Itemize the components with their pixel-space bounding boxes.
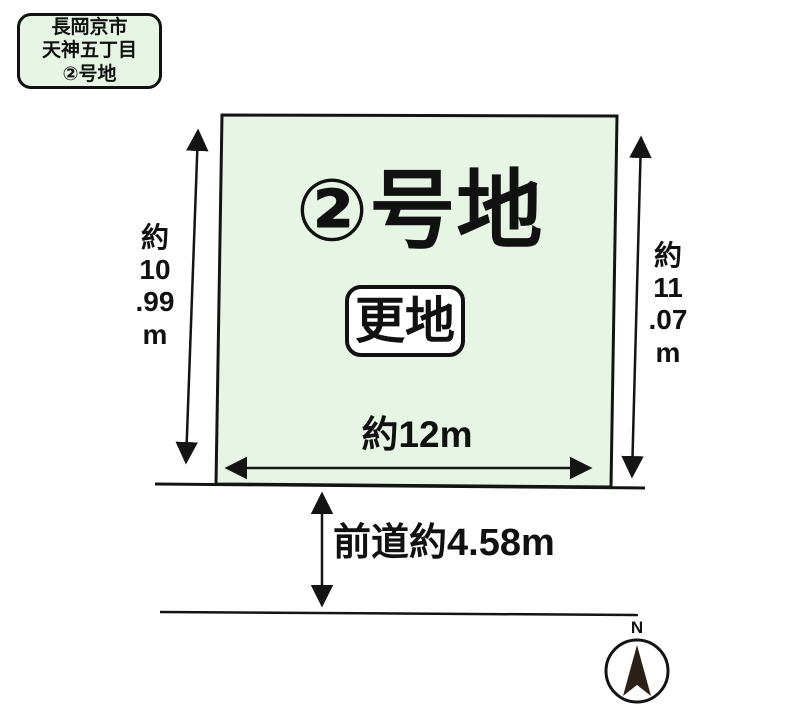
land-plot-diagram: 長岡京市 天神五丁目 ②号地 ②号地 更地 約 10 .99 m 約 11 .0… — [0, 0, 800, 727]
front-road-label: 前道約4.58m — [333, 524, 555, 562]
plot-title: ②号地 — [222, 168, 617, 254]
width-dimension-label: 約12m — [268, 416, 566, 453]
location-label: 長岡京市 天神五丁目 ②号地 — [17, 13, 162, 89]
road-edge-bottom — [160, 612, 638, 615]
north-label: N — [621, 619, 653, 636]
left-dimension-label: 約 10 .99 m — [118, 222, 192, 351]
location-label-text: 長岡京市 天神五丁目 ②号地 — [42, 16, 137, 86]
right-dimension-label: 約 11 .07 m — [631, 240, 705, 369]
status-badge-text: 更地 — [355, 296, 455, 346]
status-badge: 更地 — [345, 285, 465, 357]
